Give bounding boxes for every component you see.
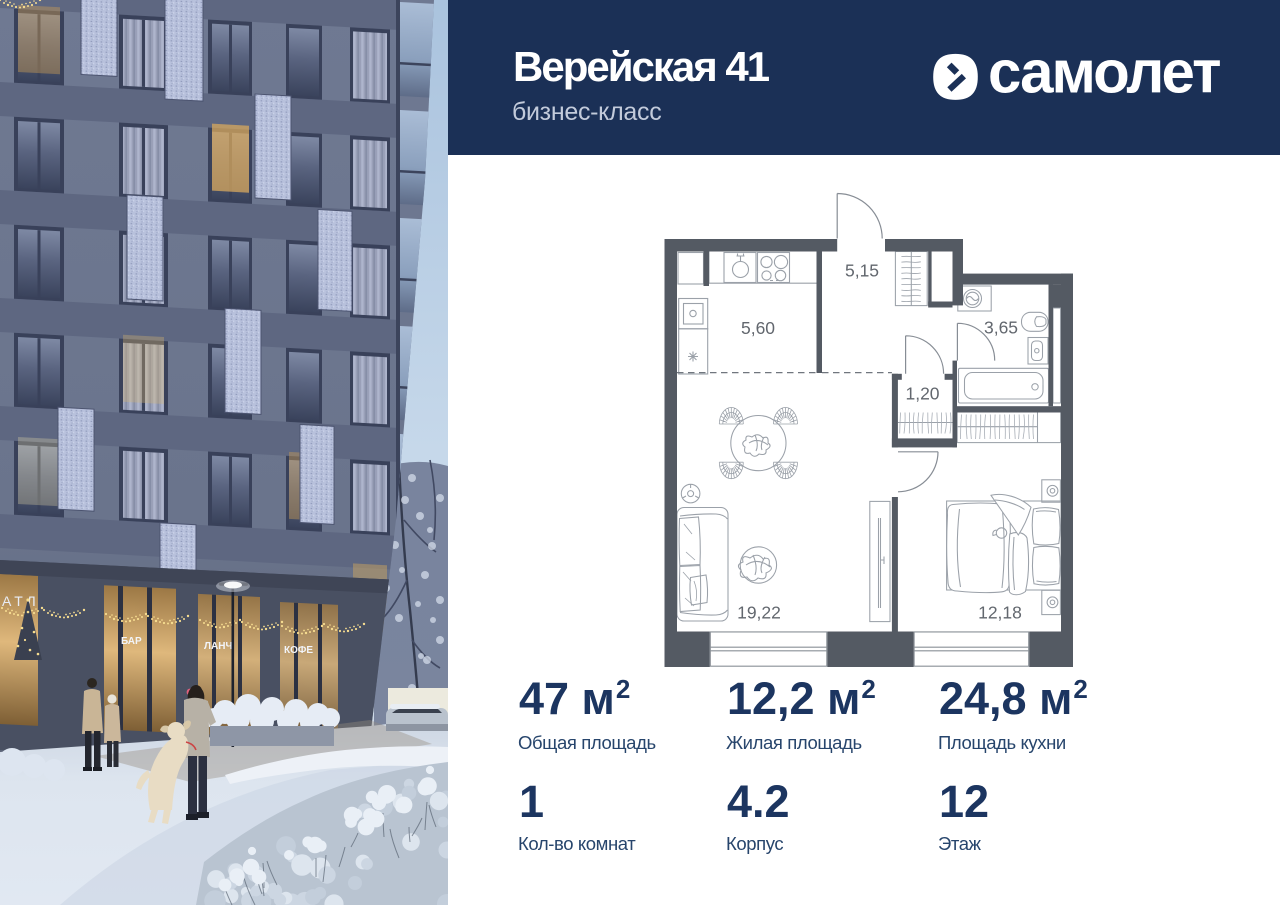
svg-text:1,20: 1,20 bbox=[905, 384, 939, 404]
svg-text:12,18: 12,18 bbox=[978, 603, 1022, 623]
svg-text:19,22: 19,22 bbox=[737, 603, 781, 623]
svg-text:КОФЕ: КОФЕ bbox=[284, 645, 313, 656]
svg-text:самолет: самолет bbox=[988, 42, 1220, 106]
svg-text:5,15: 5,15 bbox=[845, 261, 879, 281]
svg-text:3,65: 3,65 bbox=[984, 318, 1018, 338]
svg-text:5,60: 5,60 bbox=[741, 318, 775, 338]
svg-text:АТЛ: АТЛ bbox=[2, 593, 40, 609]
svg-text:БАР: БАР bbox=[121, 636, 142, 647]
svg-text:ЛАНЧ: ЛАНЧ bbox=[204, 641, 233, 652]
